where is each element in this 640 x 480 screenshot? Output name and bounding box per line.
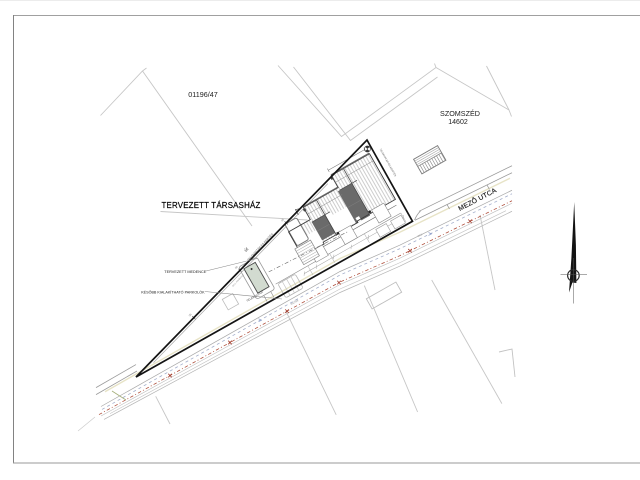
svg-text:TERVEZETT TÁRSASHÁZ: TERVEZETT TÁRSASHÁZ [162, 201, 261, 210]
svg-text:KÉSŐBB KIALAKÍTHATÓ PARKOLÓK: KÉSŐBB KIALAKÍTHATÓ PARKOLÓK [141, 289, 205, 294]
svg-text:01196/47: 01196/47 [188, 90, 217, 99]
svg-text:SZOMSZÉD: SZOMSZÉD [440, 109, 480, 118]
svg-text:TERVEZETT MEDENCE: TERVEZETT MEDENCE [164, 270, 207, 274]
svg-text:14602: 14602 [448, 119, 468, 126]
